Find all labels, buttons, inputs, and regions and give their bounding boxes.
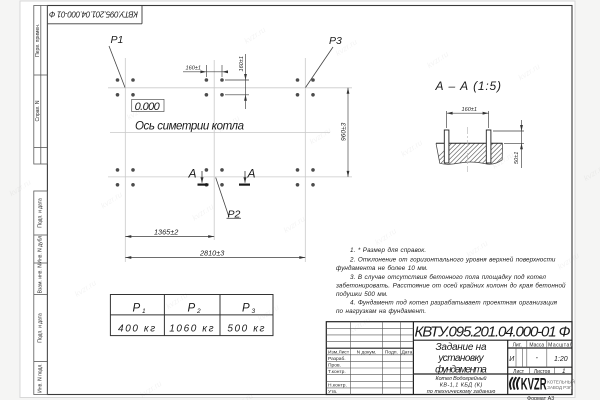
svg-text:500 кг: 500 кг [227,323,266,334]
svg-text:А – А (1:5): А – А (1:5) [435,79,502,93]
svg-text:3: 3 [252,308,256,315]
svg-text:0.000: 0.000 [135,101,161,113]
svg-text:фундамента: фундамента [435,363,487,375]
svg-text:Котел Водогрейный: Котел Водогрейный [436,375,487,382]
svg-text:P: P [133,303,141,315]
svg-text:по техническому заданию: по техническому заданию [427,389,496,395]
svg-text:Масса: Масса [529,342,544,348]
svg-text:N докум.: N докум. [357,349,377,355]
svg-text:Формат А3: Формат А3 [527,396,554,400]
svg-text:подушки 500 мм.: подушки 500 мм. [336,290,388,298]
svg-text:3. В случае отсутствия бетонно: 3. В случае отсутствия бетонного пола пл… [350,273,546,281]
svg-text:Взам. инв. N: Взам. инв. N [38,264,44,294]
svg-text:1060 кг: 1060 кг [169,323,215,334]
svg-text:1:20: 1:20 [554,356,568,363]
svg-text:1: 1 [562,368,566,375]
svg-text:P1: P1 [111,34,124,46]
svg-text:160±1: 160±1 [239,56,245,72]
svg-text:Задание на: Задание на [436,342,487,353]
svg-text:Лит.: Лит. [513,342,522,348]
svg-text:Н.контр.: Н.контр. [328,383,347,389]
svg-text:P3: P3 [329,35,342,47]
svg-text:2. Отклонение от горизонтально: 2. Отклонение от горизонтального уровня … [349,256,556,264]
svg-text:1365±2: 1365±2 [154,228,178,237]
svg-text:Т.контр.: Т.контр. [328,369,346,375]
svg-text:P: P [188,303,196,315]
svg-text:Утв.: Утв. [328,389,337,395]
svg-text:Пров.: Пров. [328,363,341,369]
svg-text:160±1: 160±1 [186,65,202,71]
svg-text:Масштаб: Масштаб [548,342,573,348]
svg-text:Подп. и дата: Подп. и дата [38,313,44,343]
svg-text:KVZR: KVZR [521,375,547,394]
svg-text:Инв. N дубл.: Инв. N дубл. [38,234,44,263]
svg-text:ЗАВОД РЭП: ЗАВОД РЭП [547,385,572,390]
svg-text:КВТУ.095.201.04.000-01 Ф: КВТУ.095.201.04.000-01 Ф [415,324,571,341]
svg-text:КВТУ.095.201.04.000-01 Ф: КВТУ.095.201.04.000-01 Ф [48,10,138,19]
svg-text:фундамента не более 10 мм.: фундамента не более 10 мм. [336,264,428,272]
svg-text:1: 1 [142,308,146,315]
svg-text:Перв. примен.: Перв. примен. [35,24,41,57]
svg-text:Инв. N подл.: Инв. N подл. [38,363,44,392]
svg-text:160±1: 160±1 [462,107,478,113]
svg-text:P: P [242,303,250,315]
svg-text:А: А [247,167,256,181]
svg-text:Справ. N: Справ. N [35,100,41,121]
svg-text:установку: установку [437,353,484,364]
svg-text:Листов: Листов [534,369,551,375]
svg-text:50±1: 50±1 [514,152,520,164]
svg-text:400 кг: 400 кг [118,323,157,334]
svg-text:Разраб.: Разраб. [328,356,346,362]
svg-text:КВ-1,1 КБД (К): КВ-1,1 КБД (К) [440,383,483,389]
svg-text:забетонировать. Расстояние от: забетонировать. Расстояние от осей крайн… [335,282,566,290]
svg-text:2810±3: 2810±3 [199,249,224,258]
svg-text:Ось симетрии котла: Ось симетрии котла [135,120,244,132]
svg-text:960±3: 960±3 [340,122,347,141]
svg-text:по нагрузкам на фундамент.: по нагрузкам на фундамент. [336,307,426,315]
svg-text:P2: P2 [228,209,241,221]
svg-text:2: 2 [196,308,201,315]
svg-text:Лист: Лист [513,369,525,375]
svg-text:Подп.: Подп. [385,349,398,355]
svg-text:Изм.Лист: Изм.Лист [328,349,350,355]
svg-text:А: А [188,167,197,181]
svg-text:1. * Размер для справок.: 1. * Размер для справок. [350,246,426,254]
svg-text:Подп. и дата: Подп. и дата [38,198,44,228]
svg-text:Дата: Дата [401,349,412,355]
svg-text:4. Фундамент под котел разраба: 4. Фундамент под котел разрабатывает про… [350,299,558,307]
